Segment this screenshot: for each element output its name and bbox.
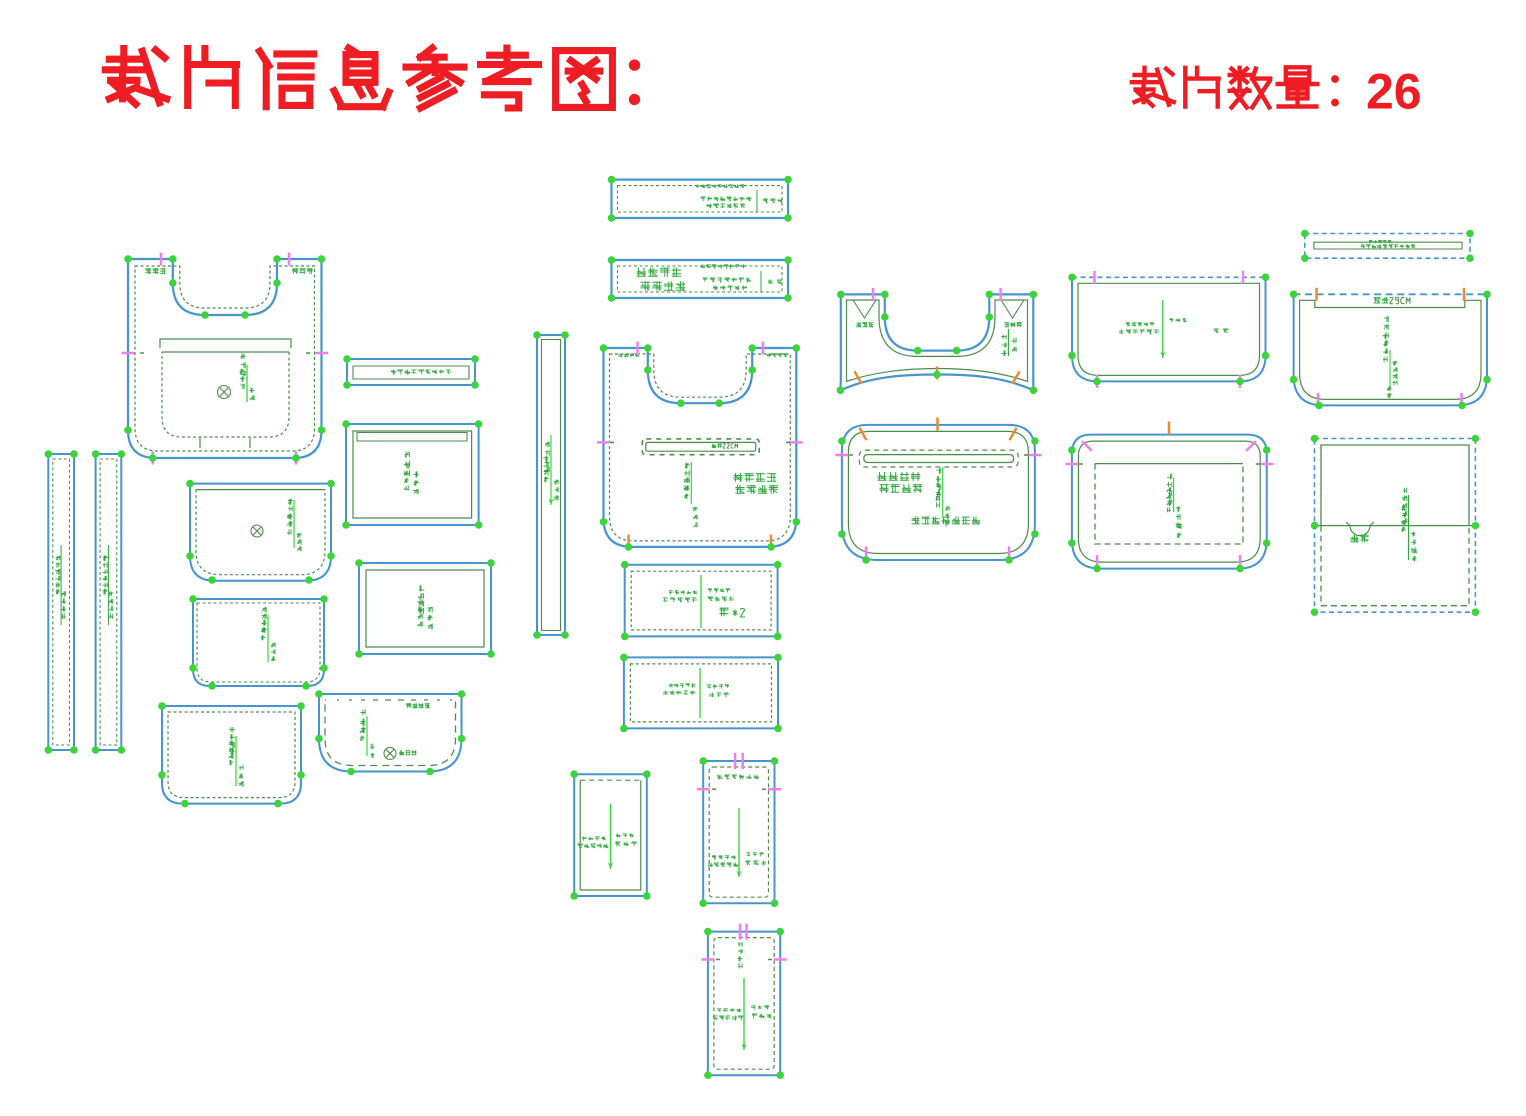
svg-text:26: 26	[1366, 64, 1422, 120]
